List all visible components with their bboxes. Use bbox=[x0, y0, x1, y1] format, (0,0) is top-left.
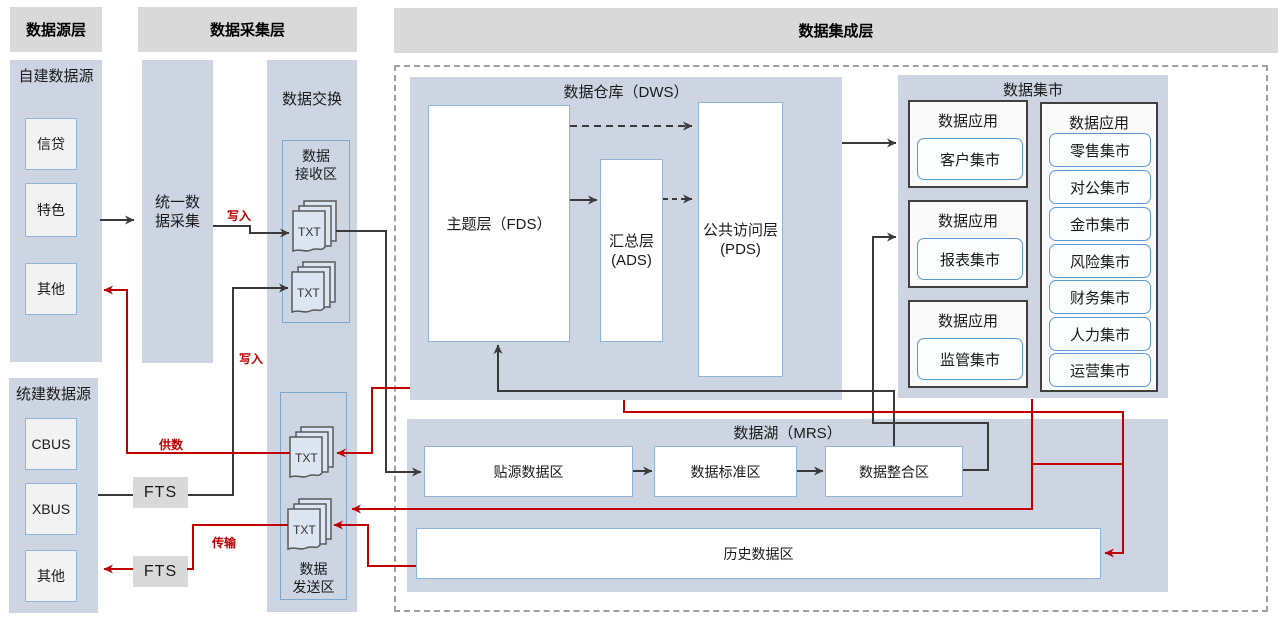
box-cbus-label: CBUS bbox=[32, 436, 71, 452]
box-other-unified: 其他 bbox=[25, 550, 77, 602]
txt-label: TXT bbox=[298, 225, 321, 239]
customer-mart-label: 客户集市 bbox=[940, 149, 1000, 170]
txt-label: TXT bbox=[293, 523, 316, 537]
txt-file-icon-send-1: TXT bbox=[289, 426, 335, 482]
label-write-lower: 写入 bbox=[239, 350, 263, 367]
data-exchange-title: 数据交换 bbox=[267, 88, 357, 109]
item-retail-mart: 零售集市 bbox=[1049, 133, 1151, 167]
header-integration-layer: 数据集成层 bbox=[394, 8, 1278, 53]
box-other-unified-label: 其他 bbox=[37, 566, 65, 586]
box-xbus: XBUS bbox=[25, 483, 77, 535]
box-source-zone: 贴源数据区 bbox=[424, 446, 633, 497]
unified-collection-label: 统一数 据采集 bbox=[155, 193, 200, 231]
fds-label: 主题层（FDS） bbox=[446, 213, 551, 234]
box-fts-lower: FTS bbox=[133, 556, 188, 587]
header-integration-layer-label: 数据集成层 bbox=[798, 20, 873, 41]
regulatory-mart-label: 监管集市 bbox=[940, 349, 1000, 370]
item-operations-mart: 运营集市 bbox=[1049, 353, 1151, 387]
data-architecture-diagram: 数据源层 数据采集层 数据集成层 自建数据源 信贷 特色 其他 统建数据源 CB… bbox=[0, 0, 1280, 627]
data-warehouse-title: 数据仓库（DWS） bbox=[410, 81, 842, 102]
data-app-1-title: 数据应用 bbox=[910, 110, 1026, 131]
box-credit-label: 信贷 bbox=[37, 134, 65, 154]
header-collection-layer-label: 数据采集层 bbox=[210, 19, 285, 40]
fts-upper-label: FTS bbox=[144, 484, 177, 502]
send-area-label: 数据 发送区 bbox=[280, 560, 347, 596]
panel-unified-title: 统建数据源 bbox=[9, 383, 98, 404]
standard-zone-label: 数据标准区 bbox=[691, 462, 761, 482]
box-pds: 公共访问层 (PDS) bbox=[698, 102, 783, 377]
header-collection-layer: 数据采集层 bbox=[138, 7, 357, 52]
box-special-label: 特色 bbox=[37, 200, 65, 220]
item-gold-mart: 金市集市 bbox=[1049, 207, 1151, 241]
box-other-self: 其他 bbox=[25, 263, 77, 315]
txt-label: TXT bbox=[297, 286, 320, 300]
panel-unified-collection: 统一数 据采集 bbox=[142, 60, 213, 363]
history-zone-label: 历史数据区 bbox=[724, 544, 794, 564]
txt-label: TXT bbox=[295, 451, 318, 465]
box-fts-upper: FTS bbox=[133, 477, 188, 508]
corporate-mart-label: 对公集市 bbox=[1070, 177, 1130, 198]
finance-mart-label: 财务集市 bbox=[1070, 287, 1130, 308]
box-cbus: CBUS bbox=[25, 418, 77, 470]
label-supply: 供数 bbox=[159, 436, 183, 453]
data-lake-title: 数据湖（MRS） bbox=[407, 422, 1168, 443]
data-app-2-title: 数据应用 bbox=[910, 210, 1026, 231]
box-fds: 主题层（FDS） bbox=[428, 105, 570, 342]
item-finance-mart: 财务集市 bbox=[1049, 280, 1151, 314]
operations-mart-label: 运营集市 bbox=[1070, 360, 1130, 381]
txt-file-icon-receive-1: TXT bbox=[292, 200, 338, 256]
box-special: 特色 bbox=[25, 183, 77, 237]
txt-file-icon-send-2: TXT bbox=[287, 498, 333, 554]
ads-label: 汇总层 (ADS) bbox=[609, 232, 654, 270]
txt-file-icon-receive-2: TXT bbox=[291, 261, 337, 317]
report-mart-label: 报表集市 bbox=[940, 249, 1000, 270]
box-xbus-label: XBUS bbox=[32, 501, 70, 517]
data-app-group-title: 数据应用 bbox=[1042, 112, 1156, 133]
box-integration-zone: 数据整合区 bbox=[825, 446, 963, 497]
data-mart-title: 数据集市 bbox=[898, 79, 1168, 100]
label-transfer: 传输 bbox=[212, 534, 236, 551]
gold-mart-label: 金市集市 bbox=[1070, 214, 1130, 235]
source-zone-label: 贴源数据区 bbox=[494, 462, 564, 482]
integration-zone-label: 数据整合区 bbox=[859, 462, 929, 482]
label-write-upper: 写入 bbox=[227, 207, 251, 224]
receive-area-label: 数据 接收区 bbox=[282, 147, 350, 183]
item-report-mart: 报表集市 bbox=[917, 238, 1023, 280]
item-hr-mart: 人力集市 bbox=[1049, 317, 1151, 351]
box-credit: 信贷 bbox=[25, 118, 77, 170]
panel-self-built-title: 自建数据源 bbox=[10, 65, 102, 86]
retail-mart-label: 零售集市 bbox=[1070, 140, 1130, 161]
fts-lower-label: FTS bbox=[144, 563, 177, 581]
header-source-layer-label: 数据源层 bbox=[26, 19, 86, 40]
box-ads: 汇总层 (ADS) bbox=[600, 159, 663, 342]
risk-mart-label: 风险集市 bbox=[1070, 251, 1130, 272]
pds-label: 公共访问层 (PDS) bbox=[703, 221, 778, 259]
item-regulatory-mart: 监管集市 bbox=[917, 338, 1023, 380]
box-standard-zone: 数据标准区 bbox=[654, 446, 797, 497]
item-corporate-mart: 对公集市 bbox=[1049, 170, 1151, 204]
header-source-layer: 数据源层 bbox=[10, 7, 102, 52]
item-customer-mart: 客户集市 bbox=[917, 138, 1023, 180]
box-other-self-label: 其他 bbox=[37, 279, 65, 299]
hr-mart-label: 人力集市 bbox=[1070, 324, 1130, 345]
box-history-zone: 历史数据区 bbox=[416, 528, 1101, 579]
data-app-3-title: 数据应用 bbox=[910, 310, 1026, 331]
item-risk-mart: 风险集市 bbox=[1049, 244, 1151, 278]
